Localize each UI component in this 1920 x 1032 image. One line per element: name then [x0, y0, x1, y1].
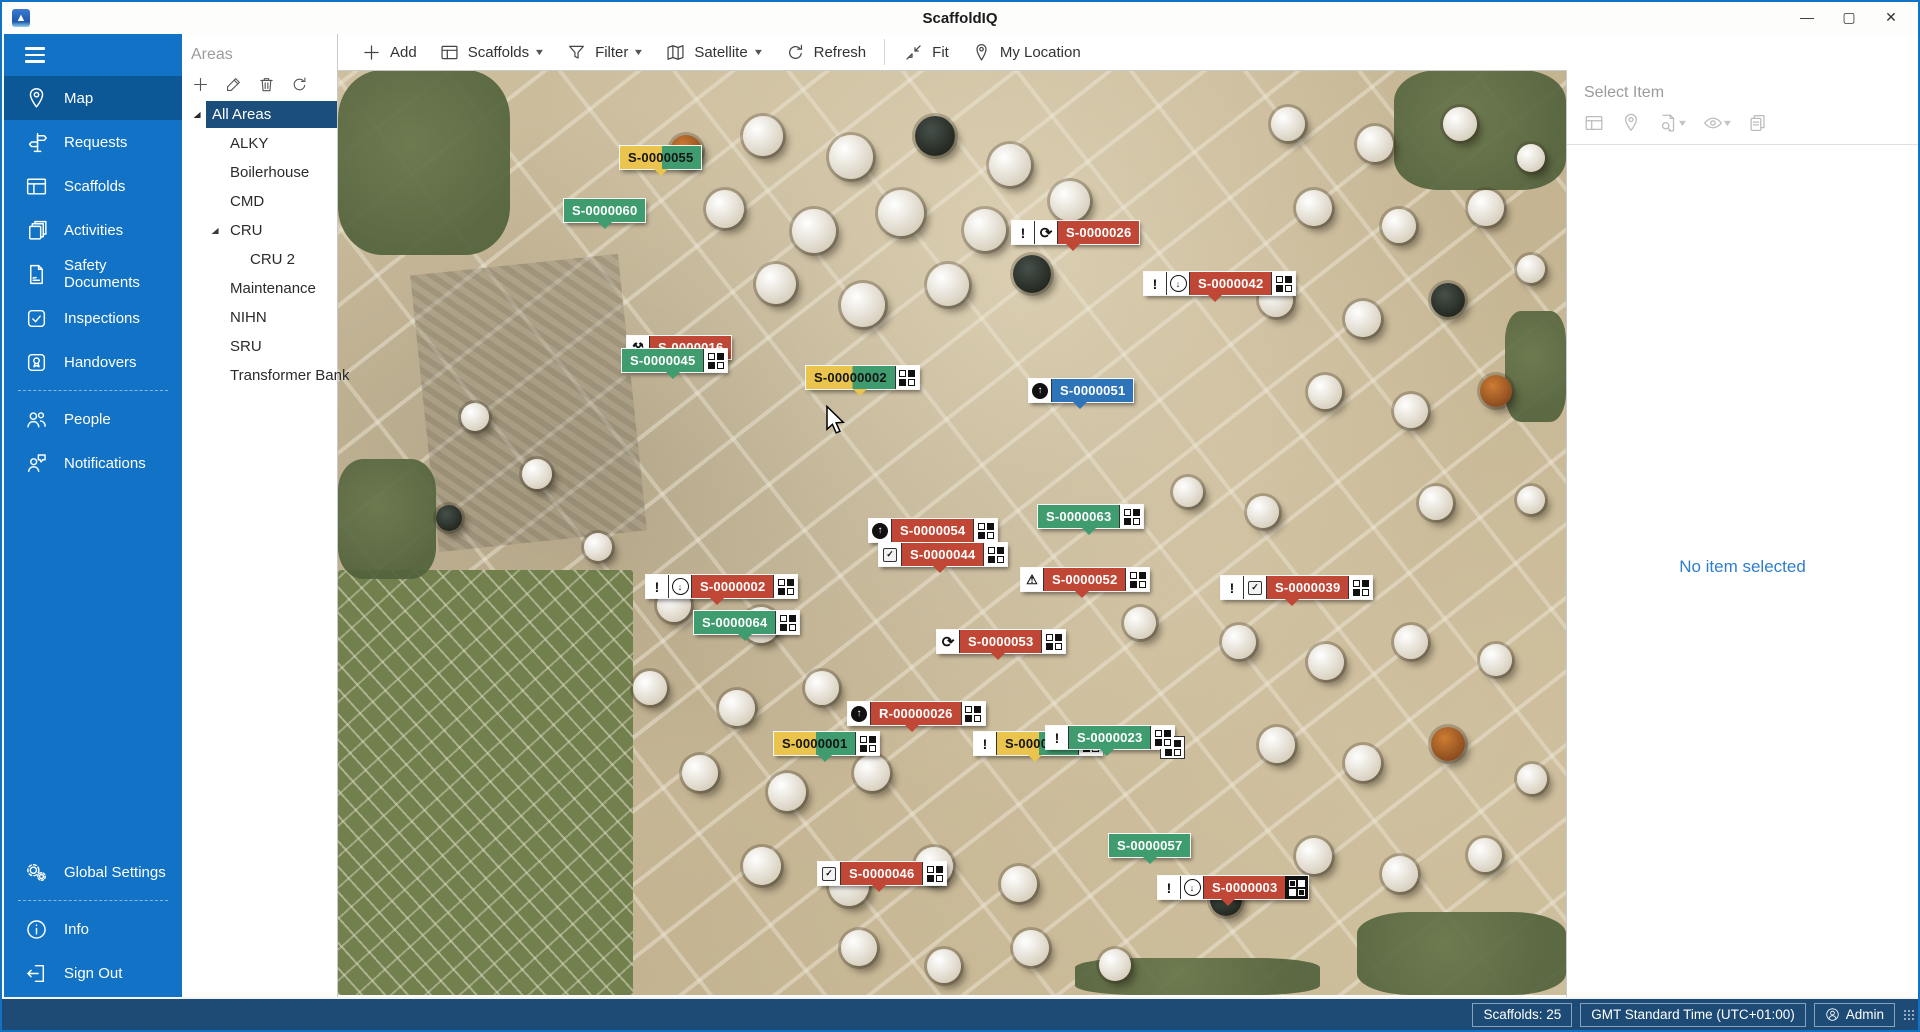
- satellite-map-icon: [665, 42, 686, 63]
- storage-tank: [1357, 126, 1393, 162]
- filter-icon: [566, 42, 587, 63]
- area-name: NIHN: [230, 309, 267, 326]
- map-label-s-0000001[interactable]: S-0000001: [774, 732, 879, 755]
- details-table-icon: [1583, 112, 1605, 134]
- map-label-s-0000044[interactable]: ✓S-0000044: [879, 543, 1007, 566]
- document-signature-icon: [24, 262, 49, 287]
- storage-tank: [1468, 838, 1502, 872]
- map-label-s-0000039[interactable]: !✓S-0000039: [1221, 576, 1372, 599]
- stacked-docs-icon: [24, 218, 49, 243]
- map-label-s-0000003[interactable]: !↓S-0000003: [1158, 876, 1308, 899]
- status-bar: Scaffolds: 25 GMT Standard Time (UTC+01:…: [2, 997, 1918, 1030]
- arrow-up-circle-icon: ↑: [848, 702, 871, 725]
- signpost-icon: [24, 130, 49, 155]
- alert-exclaim-icon: !: [974, 732, 997, 755]
- storage-tank: [1099, 949, 1131, 981]
- toolbar-button-label: Scaffolds: [468, 44, 529, 61]
- label-pointer: [738, 634, 752, 641]
- area-tree-item-transformer-bank[interactable]: Transformer Bank: [182, 361, 337, 390]
- areas-add-button[interactable]: [190, 74, 210, 94]
- scaffold-id: S-0000039: [1267, 576, 1348, 599]
- alert-exclaim-icon: !: [1221, 576, 1244, 599]
- pencil-icon: [224, 75, 243, 94]
- storage-tank: [1443, 107, 1477, 141]
- menu-toggle-button[interactable]: [4, 34, 182, 76]
- label-pointer: [1285, 599, 1299, 606]
- label-pointer: [872, 885, 886, 892]
- label-pointer: [1221, 899, 1235, 906]
- storage-tank: [1345, 745, 1381, 781]
- areas-panel: Areas ◢All AreasALKYBoilerhouseCMD◢CRUCR…: [182, 34, 338, 997]
- sidebar-item-people[interactable]: People: [4, 397, 182, 441]
- toolbar-satellite-button[interactable]: Satellite▼: [654, 37, 773, 67]
- mouse-cursor: [825, 405, 847, 435]
- scaffold-cluster-icon: [973, 519, 997, 542]
- scaffold-cluster-icon: [961, 702, 985, 725]
- area-tree-item-cru-2[interactable]: CRU 2: [182, 245, 337, 274]
- checked-box-icon: ✓: [818, 862, 841, 885]
- area-tree-item-all-areas[interactable]: ◢All Areas: [182, 100, 337, 129]
- label-pointer: [933, 566, 947, 573]
- tree-expander-icon[interactable]: ◢: [194, 110, 201, 119]
- my-location-icon: [971, 42, 992, 63]
- storage-tank: [1517, 255, 1545, 283]
- sidebar: MapRequestsScaffoldsActivitiesSafety Doc…: [4, 34, 182, 997]
- storage-tank: [1050, 181, 1090, 221]
- sidebar-divider: [18, 900, 168, 901]
- chevron-down-icon: ▼: [1677, 118, 1689, 128]
- areas-edit-button[interactable]: [223, 74, 243, 94]
- area-tree-item-cru[interactable]: ◢CRU: [182, 216, 337, 245]
- tree-expander-icon[interactable]: ◢: [212, 226, 219, 235]
- map-vegetation: [1394, 70, 1566, 190]
- map-label-s-0000055[interactable]: S-0000055: [620, 146, 701, 169]
- sidebar-item-inspections[interactable]: Inspections: [4, 296, 182, 340]
- storage-tank: [1431, 283, 1465, 317]
- storage-tank: [1001, 866, 1037, 902]
- map-label-s-0000045[interactable]: S-0000045: [622, 349, 727, 372]
- storage-tank: [522, 459, 552, 489]
- scaffold-cluster-icon: [1119, 505, 1143, 528]
- certificate-icon: [24, 350, 49, 375]
- label-pointer: [666, 372, 680, 379]
- storage-tank: [1382, 856, 1418, 892]
- map-pin-icon: [1620, 112, 1642, 134]
- scaffold-cluster-icon: [1125, 568, 1149, 591]
- minimize-button[interactable]: —: [1786, 2, 1828, 32]
- label-pointer: [991, 653, 1005, 660]
- sidebar-item-info[interactable]: Info: [4, 907, 182, 951]
- toolbar-add-button[interactable]: Add: [350, 37, 428, 67]
- map-label-s-0000023[interactable]: !S-0000023: [1046, 726, 1174, 749]
- label-pointer: [1075, 591, 1089, 598]
- scaffold-id: S-0000055: [620, 146, 701, 169]
- checked-box-icon: ✓: [1244, 576, 1267, 599]
- area-tree-item-maintenance[interactable]: Maintenance: [182, 274, 337, 303]
- areas-delete-button[interactable]: [256, 74, 276, 94]
- storage-tank: [584, 533, 612, 561]
- label-pointer: [1082, 528, 1096, 535]
- toolbar-button-label: Add: [390, 44, 417, 61]
- storage-tank: [1431, 727, 1465, 761]
- scaffold-id: S-0000042: [1190, 272, 1271, 295]
- storage-tank: [1345, 301, 1381, 337]
- item-detail-panel: Select Item ▼▼ No item selected: [1566, 70, 1918, 997]
- map-label-s-00000002[interactable]: S-00000002: [806, 366, 919, 389]
- storage-tank: [927, 949, 961, 983]
- download-circle-icon: ↓: [1181, 876, 1204, 899]
- scaffold-id: S-0000023: [1069, 726, 1150, 749]
- close-button[interactable]: ✕: [1870, 2, 1912, 32]
- storage-tank: [1259, 727, 1295, 763]
- storage-tank: [1173, 477, 1203, 507]
- item-panel-title: Select Item: [1584, 84, 1918, 102]
- title-bar: ▲ ScaffoldIQ — ▢ ✕: [2, 2, 1918, 34]
- scaffold-id: S-0000063: [1038, 505, 1119, 528]
- sign-out-icon: [24, 961, 49, 986]
- storage-tank: [829, 135, 873, 179]
- map-label-s-0000002[interactable]: !↓S-0000002: [646, 575, 797, 598]
- storage-tank: [633, 671, 667, 705]
- sidebar-item-scaffolds[interactable]: Scaffolds: [4, 164, 182, 208]
- scaffold-id: S-0000003: [1204, 876, 1285, 899]
- checkbox-icon: [24, 306, 49, 331]
- sidebar-item-safety-documents[interactable]: Safety Documents: [4, 252, 182, 296]
- scaffold-id: S-0000054: [892, 519, 973, 542]
- chevron-down-icon: ▼: [633, 47, 645, 57]
- sidebar-item-activities[interactable]: Activities: [4, 208, 182, 252]
- scaffold-id: S-00000002: [806, 366, 895, 389]
- scaffold-cluster-icon: [1285, 876, 1308, 899]
- resize-grip[interactable]: [1903, 1009, 1915, 1021]
- storage-tank: [1382, 209, 1416, 243]
- storage-tank: [792, 209, 836, 253]
- fit-icon: [903, 42, 924, 63]
- scaffold-cluster-icon: [1041, 630, 1065, 653]
- area-name: SRU: [230, 338, 262, 355]
- storage-tank: [805, 671, 839, 705]
- plus-icon: [191, 75, 210, 94]
- arrow-up-circle-icon: ↑: [1029, 379, 1052, 402]
- sidebar-item-handovers[interactable]: Handovers: [4, 340, 182, 384]
- storage-tank: [964, 209, 1006, 251]
- download-circle-icon: ↓: [1167, 272, 1190, 295]
- areas-panel-title: Areas: [191, 46, 337, 64]
- current-user-button[interactable]: Admin: [1814, 1003, 1895, 1027]
- sidebar-item-sign-out[interactable]: Sign Out: [4, 951, 182, 995]
- alert-exclaim-icon: !: [1046, 726, 1069, 749]
- label-pointer: [654, 169, 668, 176]
- map-toolbar: AddScaffolds▼Filter▼Satellite▼RefreshFit…: [338, 34, 1918, 71]
- storage-tank: [1517, 764, 1547, 794]
- storage-tank: [1394, 625, 1428, 659]
- panel-divider: [1567, 144, 1918, 145]
- hamburger-icon: [25, 47, 45, 62]
- area-tree-item-sru[interactable]: SRU: [182, 332, 337, 361]
- map-label-s-0000057[interactable]: S-0000057: [1109, 834, 1190, 857]
- map-label-s-0000026[interactable]: !⟳S-0000026: [1012, 221, 1139, 244]
- storage-tank: [989, 144, 1031, 186]
- area-name: CRU: [230, 222, 263, 239]
- label-pointer: [818, 755, 832, 762]
- area-name: CRU 2: [250, 251, 295, 268]
- scaffold-table-icon: [439, 42, 460, 63]
- copy-icon: [1747, 112, 1769, 134]
- sidebar-item-label: Notifications: [64, 455, 146, 472]
- arrow-up-circle-icon: ↑: [869, 519, 892, 542]
- scaffold-id: R-00000026: [871, 702, 961, 725]
- sidebar-item-notifications[interactable]: Notifications: [4, 441, 182, 485]
- label-pointer: [1143, 857, 1157, 864]
- area-tree-item-nihn[interactable]: NIHN: [182, 303, 337, 332]
- scaffold-cluster-icon: [922, 862, 946, 885]
- sidebar-item-map[interactable]: Map: [4, 76, 182, 120]
- trash-icon: [257, 75, 276, 94]
- warning-triangle-icon: ⚠: [1021, 568, 1044, 591]
- label-pointer: [1208, 295, 1222, 302]
- scaffold-id: S-0000046: [841, 862, 922, 885]
- storage-tank: [841, 283, 885, 327]
- map-label-r-00000026[interactable]: ↑R-00000026: [848, 702, 985, 725]
- sidebar-item-label: Inspections: [64, 310, 140, 327]
- storage-tank: [743, 847, 781, 885]
- storage-tank: [1468, 190, 1504, 226]
- area-tree-item-cmd[interactable]: CMD: [182, 187, 337, 216]
- scaffold-id: S-0000001: [774, 732, 855, 755]
- scaffold-id: S-0000060: [564, 199, 645, 222]
- area-tree-item-boilerhouse[interactable]: Boilerhouse: [182, 158, 337, 187]
- map-vegetation: [338, 70, 510, 255]
- areas-tree: ◢All AreasALKYBoilerhouseCMD◢CRUCRU 2Mai…: [182, 100, 337, 390]
- sidebar-item-label: Map: [64, 90, 93, 107]
- map-vegetation: [1505, 311, 1566, 422]
- map-vegetation: [1357, 912, 1566, 995]
- item-action-visibility-button[interactable]: ▼: [1702, 112, 1732, 134]
- maximize-button[interactable]: ▢: [1828, 2, 1870, 32]
- storage-tank: [719, 690, 755, 726]
- chevron-down-icon: ▼: [1722, 118, 1734, 128]
- toolbar-fit-button[interactable]: Fit: [892, 37, 960, 67]
- scaffold-count-badge: Scaffolds: 25: [1472, 1003, 1572, 1027]
- map-residential-area: [338, 570, 633, 996]
- storage-tank: [1247, 496, 1279, 528]
- storage-tank: [768, 773, 806, 811]
- label-pointer: [853, 389, 867, 396]
- storage-tank: [1517, 144, 1545, 172]
- toolbar-filter-button[interactable]: Filter▼: [555, 37, 654, 67]
- scaffold-id: S-0000052: [1044, 568, 1125, 591]
- scaffold-id: S-0000051: [1052, 379, 1133, 402]
- sync-icon: ⟳: [937, 630, 960, 653]
- checked-box-icon: ✓: [879, 543, 902, 566]
- scaffold-cluster-icon: [1150, 726, 1174, 749]
- notification-person-icon: [24, 451, 49, 476]
- storage-tank: [1308, 644, 1344, 680]
- storage-tank: [1296, 190, 1332, 226]
- map-label-s-0000046[interactable]: ✓S-0000046: [818, 862, 946, 885]
- sync-icon: ⟳: [1035, 221, 1058, 244]
- storage-tank: [1480, 644, 1512, 676]
- chevron-down-icon: ▼: [752, 47, 764, 57]
- sidebar-item-label: Requests: [64, 134, 127, 151]
- storage-tank: [1517, 486, 1545, 514]
- map-label-s-0000063[interactable]: S-0000063: [1038, 505, 1143, 528]
- plus-icon: [361, 42, 382, 63]
- sidebar-divider: [18, 390, 168, 391]
- storage-tank: [854, 755, 890, 791]
- toolbar-refresh-button[interactable]: Refresh: [774, 37, 878, 67]
- scaffold-id: S-0000026: [1058, 221, 1139, 244]
- map-label-s-0000051[interactable]: ↑S-0000051: [1029, 379, 1133, 402]
- alert-exclaim-icon: !: [1144, 272, 1167, 295]
- toolbar-separator: [884, 39, 885, 65]
- label-pointer: [598, 222, 612, 229]
- area-name: ALKY: [230, 135, 268, 152]
- item-action-copy-button[interactable]: [1747, 112, 1769, 134]
- people-icon: [24, 407, 49, 432]
- toolbar-button-label: Fit: [932, 44, 949, 61]
- label-pointer: [1073, 402, 1087, 409]
- toolbar-button-label: Refresh: [814, 44, 867, 61]
- scaffold-id: S-0000002: [692, 575, 773, 598]
- storage-tank: [756, 264, 796, 304]
- storage-tank: [436, 505, 462, 531]
- item-action-map-pin-button[interactable]: [1620, 112, 1642, 134]
- scaffold-table-icon: [24, 174, 49, 199]
- toolbar-button-label: Satellite: [694, 44, 747, 61]
- download-circle-icon: ↓: [669, 575, 692, 598]
- storage-tank: [461, 403, 489, 431]
- scaffold-cluster-icon: [855, 732, 879, 755]
- visibility-icon: [1702, 112, 1724, 134]
- item-action-document-search-button[interactable]: ▼: [1657, 112, 1687, 134]
- sidebar-item-label: Safety Documents: [64, 257, 182, 291]
- timezone-badge: GMT Standard Time (UTC+01:00): [1580, 1003, 1805, 1027]
- scaffold-id: S-0000057: [1109, 834, 1190, 857]
- scaffold-cluster-icon: [773, 575, 797, 598]
- storage-tank: [1296, 838, 1332, 874]
- storage-tank: [1124, 607, 1156, 639]
- info-icon: [24, 917, 49, 942]
- area-tree-item-alky[interactable]: ALKY: [182, 129, 337, 158]
- map-label-s-0000054[interactable]: ↑S-0000054: [869, 519, 997, 542]
- alert-exclaim-icon: !: [1158, 876, 1181, 899]
- sidebar-item-label: Handovers: [64, 354, 137, 371]
- label-pointer: [710, 598, 724, 605]
- label-pointer: [905, 725, 919, 732]
- sidebar-item-requests[interactable]: Requests: [4, 120, 182, 164]
- map-canvas[interactable]: S-0000055S-0000060!⟳S-0000026!↓S-0000042…: [338, 70, 1566, 995]
- scaffold-id: S-0000064: [694, 611, 775, 634]
- toolbar-my-location-button[interactable]: My Location: [960, 37, 1092, 67]
- alert-exclaim-icon: !: [646, 575, 669, 598]
- item-action-details-table-button[interactable]: [1583, 112, 1605, 134]
- refresh-icon: [290, 75, 309, 94]
- no-item-selected-text: No item selected: [1567, 557, 1918, 577]
- toolbar-scaffolds-button[interactable]: Scaffolds▼: [428, 37, 555, 67]
- label-pointer: [1066, 244, 1080, 251]
- sidebar-item-label: Sign Out: [64, 965, 122, 982]
- storage-tank: [1222, 625, 1256, 659]
- areas-refresh-button[interactable]: [289, 74, 309, 94]
- map-vegetation: [338, 459, 436, 579]
- map-label-s-0000064[interactable]: S-0000064: [694, 611, 799, 634]
- alert-exclaim-icon: !: [1012, 221, 1035, 244]
- scaffold-cluster-icon: [703, 349, 727, 372]
- label-pointer: [1100, 749, 1114, 756]
- scaffold-cluster-icon: [983, 543, 1007, 566]
- user-icon: [1825, 1007, 1840, 1022]
- area-name: Boilerhouse: [230, 164, 309, 181]
- map-label-s-0000053[interactable]: ⟳S-0000053: [937, 630, 1065, 653]
- window-title: ScaffoldIQ: [2, 2, 1918, 34]
- storage-tank: [1394, 394, 1428, 428]
- map-pin-icon: [24, 86, 49, 111]
- toolbar-button-label: Filter: [595, 44, 628, 61]
- area-name: Transformer Bank: [230, 367, 349, 384]
- scaffold-id: S-0000044: [902, 543, 983, 566]
- scaffold-cluster-icon: [1348, 576, 1372, 599]
- map-label-s-0000042[interactable]: !↓S-0000042: [1144, 272, 1295, 295]
- scaffold-cluster-icon: [1271, 272, 1295, 295]
- map-label-s-0000052[interactable]: ⚠S-0000052: [1021, 568, 1149, 591]
- scaffold-cluster-icon: [895, 366, 919, 389]
- sidebar-item-label: Info: [64, 921, 89, 938]
- sidebar-item-global-settings[interactable]: Global Settings: [4, 850, 182, 894]
- sidebar-item-label: Global Settings: [64, 864, 166, 881]
- toolbar-button-label: My Location: [1000, 44, 1081, 61]
- area-name: All Areas: [212, 106, 271, 123]
- scaffold-cluster-icon: [775, 611, 799, 634]
- sidebar-item-label: People: [64, 411, 111, 428]
- chevron-down-icon: ▼: [534, 47, 546, 57]
- label-pointer: [1028, 755, 1042, 762]
- area-name: Maintenance: [230, 280, 316, 297]
- sidebar-item-label: Activities: [64, 222, 123, 239]
- scaffold-id: S-0000045: [622, 349, 703, 372]
- storage-tank: [682, 755, 718, 791]
- sidebar-item-label: Scaffolds: [64, 178, 125, 195]
- gears-icon: [24, 860, 49, 885]
- storage-tank: [1419, 486, 1453, 520]
- refresh-icon: [785, 42, 806, 63]
- map-label-s-0000060[interactable]: S-0000060: [564, 199, 645, 222]
- scaffold-id: S-0000053: [960, 630, 1041, 653]
- area-name: CMD: [230, 193, 264, 210]
